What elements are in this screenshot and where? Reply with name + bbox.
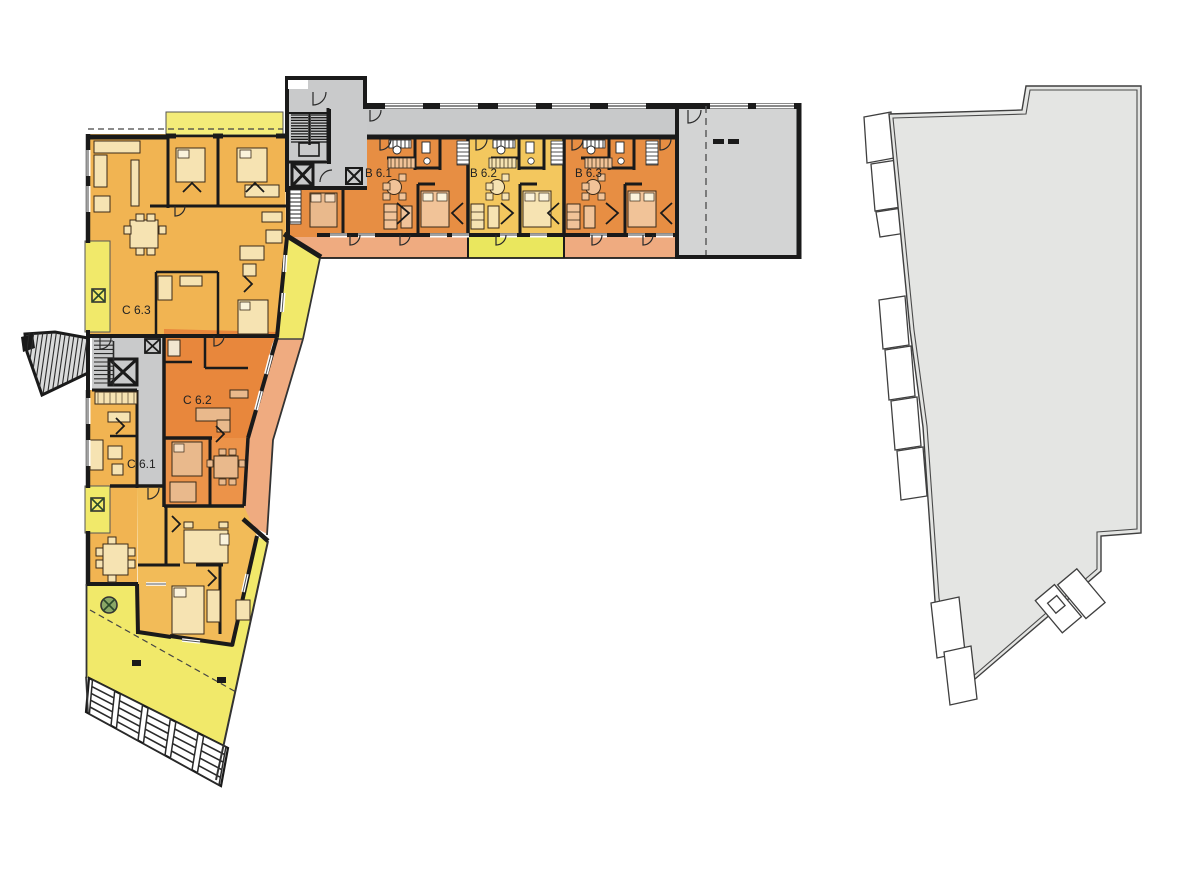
- svg-text:C 6.3: C 6.3: [122, 303, 151, 317]
- svg-text:B 6.2: B 6.2: [470, 168, 497, 180]
- svg-text:B 6.3: B 6.3: [575, 168, 602, 180]
- svg-text:C 6.1: C 6.1: [127, 457, 156, 471]
- svg-text:B 6.1: B 6.1: [365, 168, 392, 180]
- svg-text:C 6.2: C 6.2: [183, 393, 212, 407]
